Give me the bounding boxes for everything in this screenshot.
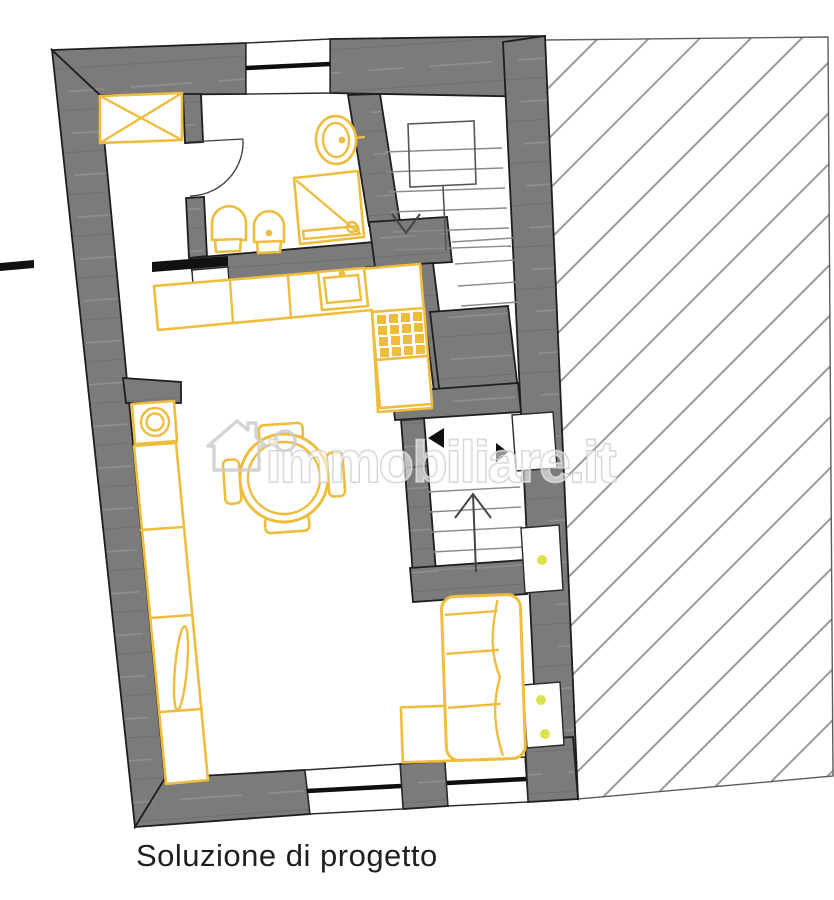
bathroom-door (188, 139, 243, 196)
caption: Soluzione di progetto (136, 838, 438, 874)
hatched-adjacent-area (545, 37, 833, 799)
floor-plan-drawing: immobiliare.it (0, 0, 834, 900)
bathroom (188, 115, 364, 253)
watermark-text: immobiliare.it (265, 430, 616, 495)
window-bottom-right (445, 757, 528, 806)
staircase-upper (384, 121, 511, 250)
kitchen-cabinet (376, 356, 432, 408)
washing-machine-icon (132, 401, 177, 444)
toilet-icon (212, 206, 246, 252)
staircase-lower (427, 487, 525, 572)
window-bottom-left (305, 764, 403, 814)
stove-icon (372, 308, 428, 360)
kitchen-sink-icon (318, 268, 368, 310)
floor-plan-image: immobiliare.it Soluzione di progetto (0, 0, 834, 900)
bidet-icon (254, 211, 284, 253)
watermark: immobiliare.it (208, 421, 616, 495)
shower-icon (294, 171, 364, 244)
sofa-icon (397, 594, 526, 762)
wardrobe-icon (100, 93, 182, 143)
kitchen (154, 264, 432, 412)
window-top (246, 39, 330, 94)
